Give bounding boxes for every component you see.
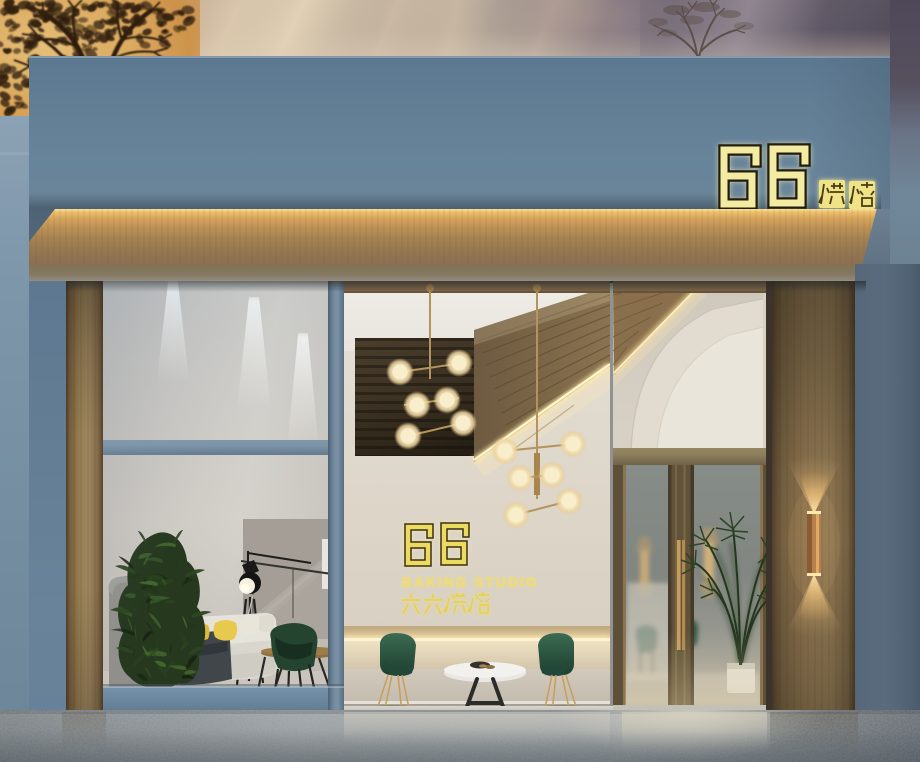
svg-text:BAKING STUDIO: BAKING STUDIO [402, 575, 539, 590]
